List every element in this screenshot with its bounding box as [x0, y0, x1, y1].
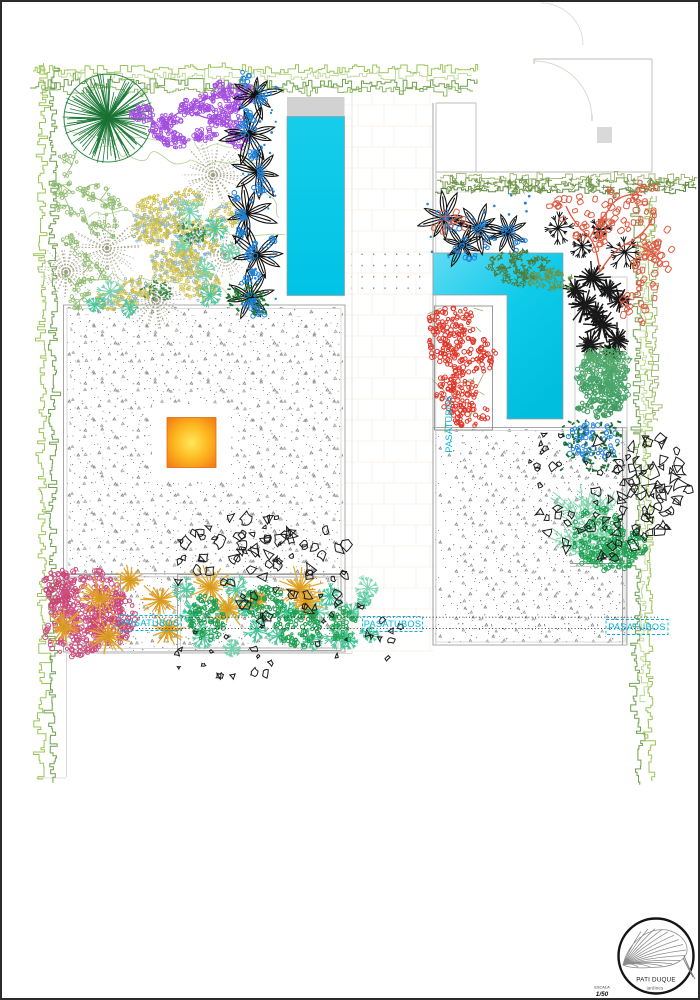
- svg-text:PASATUBOS: PASATUBOS: [444, 395, 454, 453]
- svg-text:PATI DUQUE: PATI DUQUE: [636, 977, 676, 984]
- svg-text:1/50: 1/50: [596, 991, 609, 998]
- svg-text:jardines: jardines: [646, 986, 664, 991]
- svg-text:PASATUBOS: PASATUBOS: [364, 619, 422, 629]
- svg-text:PASATUBOS: PASATUBOS: [608, 622, 666, 632]
- svg-text:PASATUBOS: PASATUBOS: [122, 618, 180, 628]
- svg-text:ESCALA: ESCALA: [594, 985, 610, 990]
